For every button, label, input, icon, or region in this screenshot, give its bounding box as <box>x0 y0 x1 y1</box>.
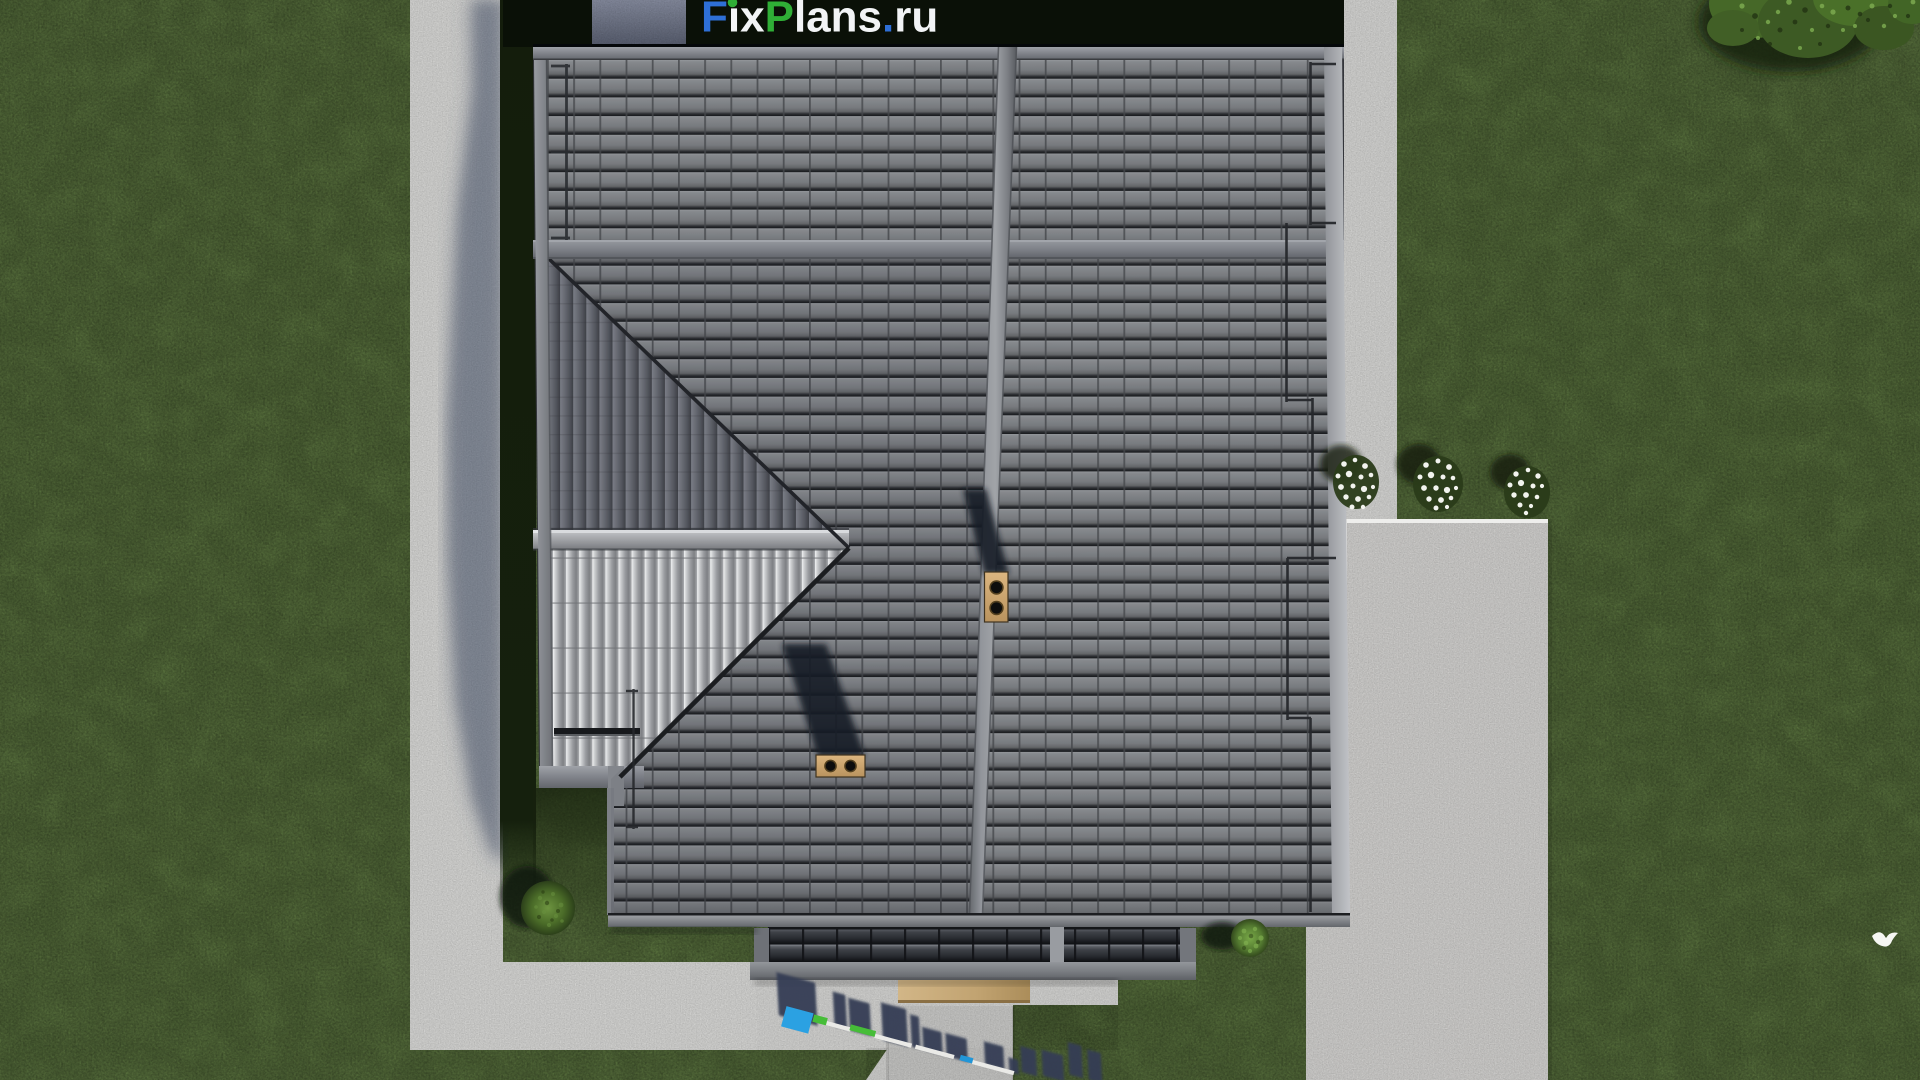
svg-text:FıxPlans.ru: FıxPlans.ru <box>701 0 938 42</box>
